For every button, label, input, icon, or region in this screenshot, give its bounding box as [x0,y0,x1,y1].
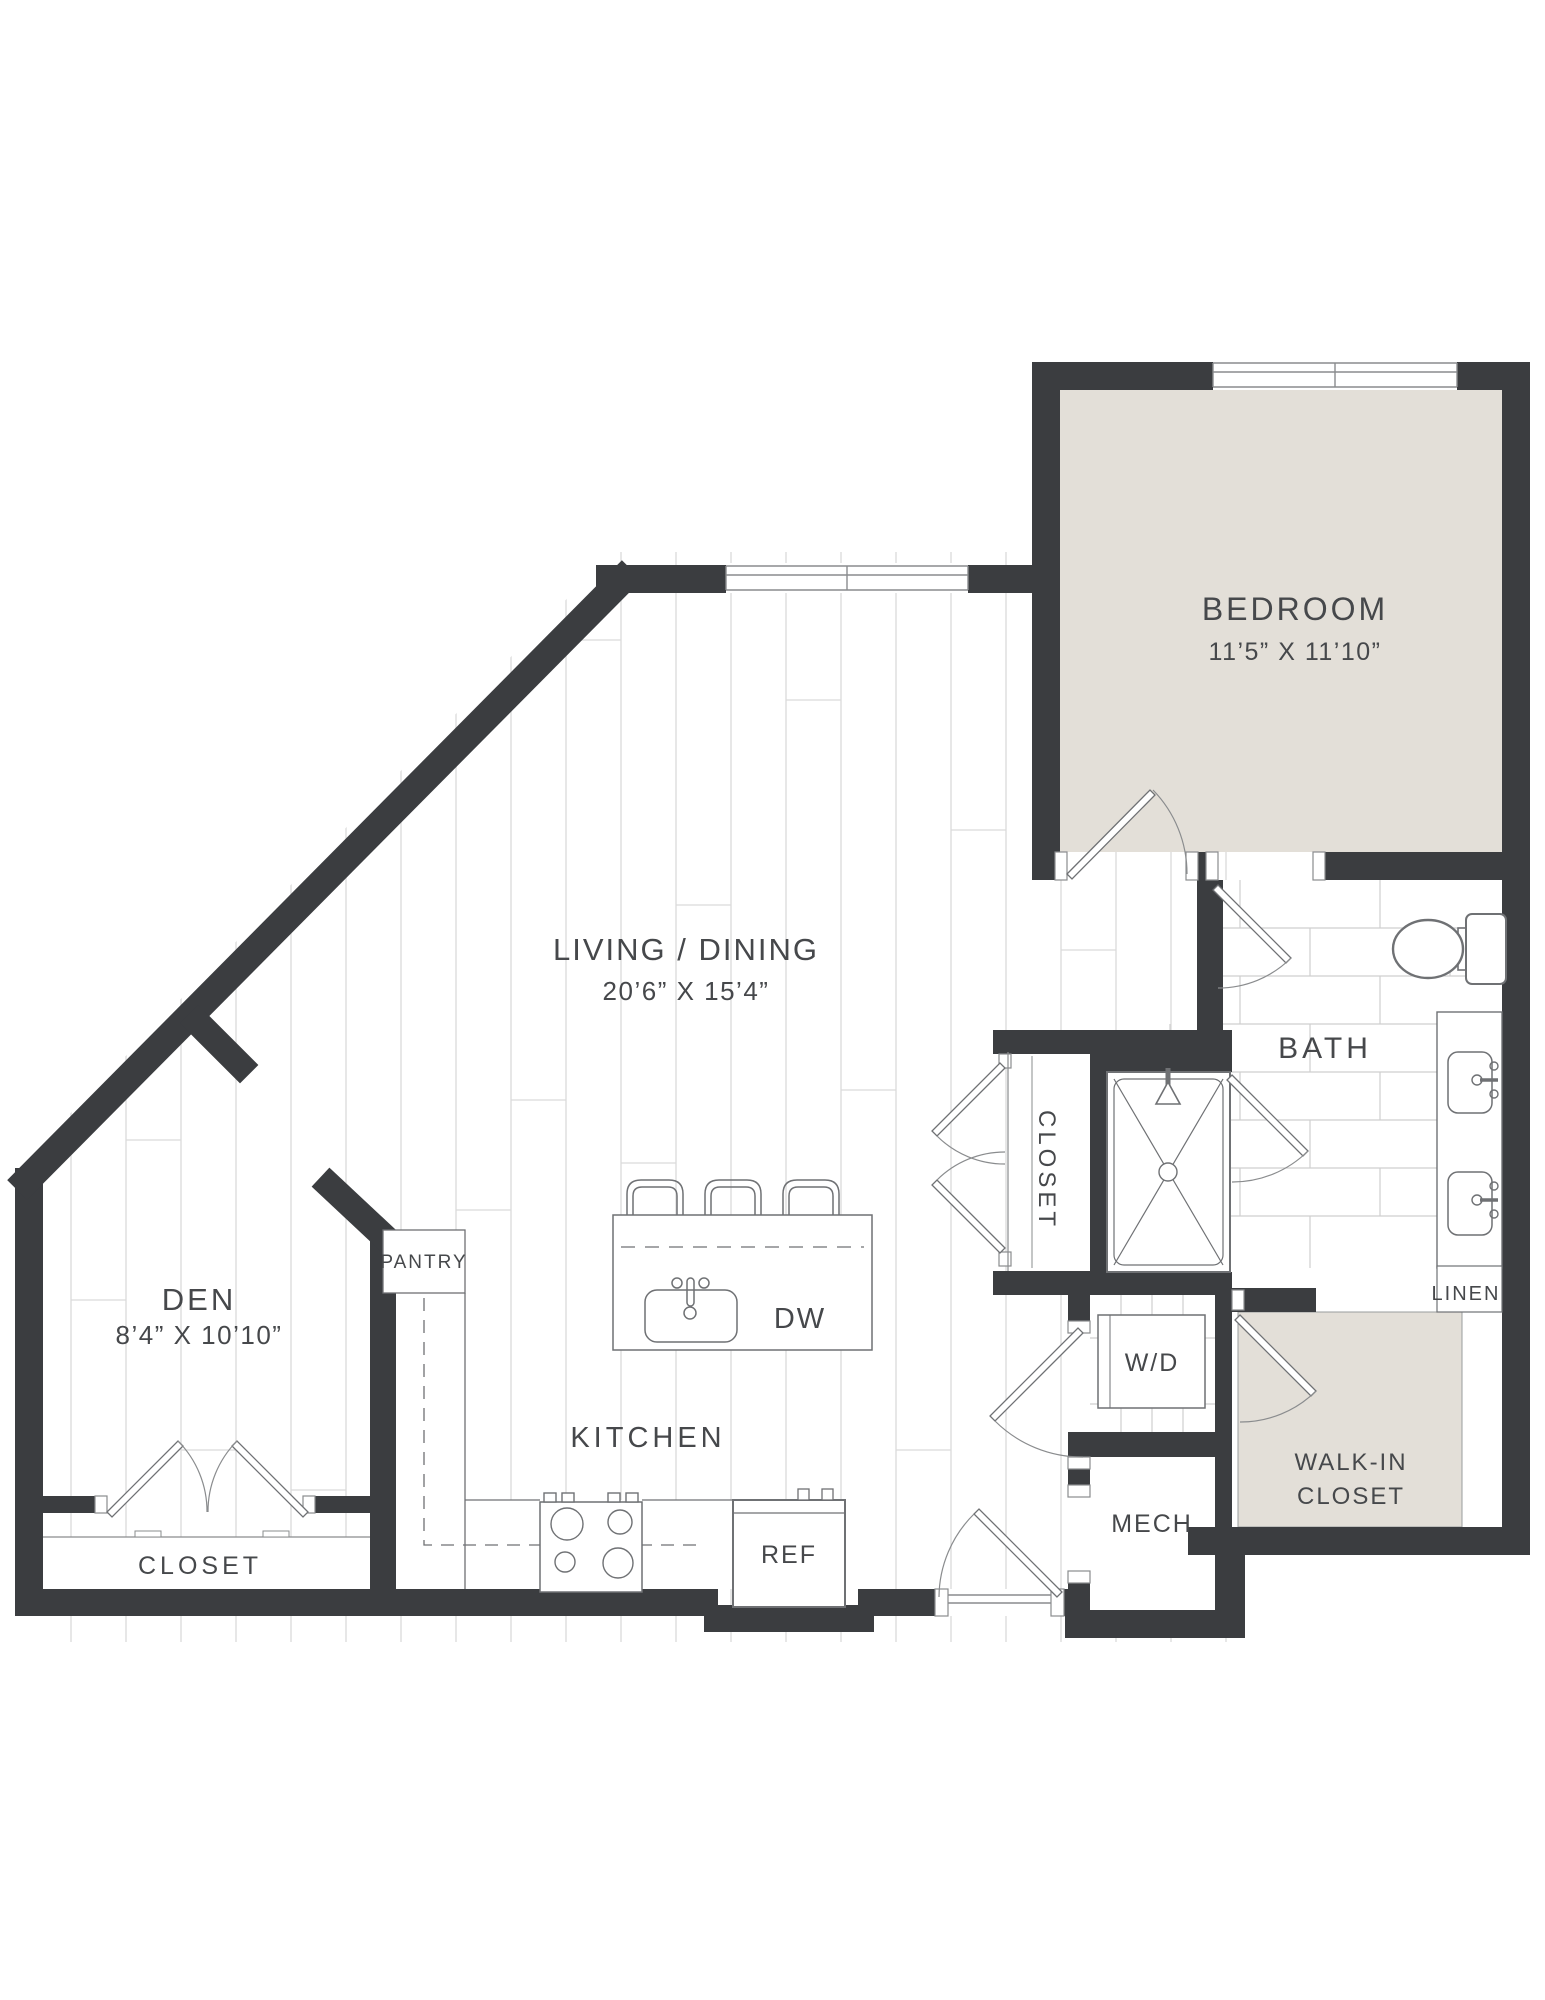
mech-label: MECH [1111,1510,1193,1538]
floor-plan-page: BEDROOM 11’5” X 11’10” LIVING / DINING 2… [0,0,1545,2000]
bedroom-window [1213,360,1457,390]
dishwasher-label: DW [774,1303,826,1335]
bath-label: BATH [1278,1032,1372,1065]
bedroom-label: BEDROOM [1202,591,1388,627]
walk-in-closet-label-line2: CLOSET [1297,1483,1405,1510]
vanity-sink-2 [1448,1172,1492,1235]
bedroom-dims: 11’5” X 11’10” [1209,638,1382,666]
hall-closet-double-doors [932,1063,1005,1253]
floor-plan: BEDROOM 11’5” X 11’10” LIVING / DINING 2… [0,0,1545,2000]
shower [1107,1068,1230,1272]
vanity [1437,1012,1502,1268]
refrigerator-label: REF [761,1541,817,1569]
den-closet-label: CLOSET [138,1552,262,1580]
den-closet-lines [43,1531,370,1537]
den-label: DEN [162,1282,236,1317]
kitchen-label: KITCHEN [570,1422,725,1454]
entry-threshold [935,1589,1064,1616]
bar-stools [627,1180,839,1215]
hall-closet-label: CLOSET [1033,1110,1060,1230]
living-dining-label: LIVING / DINING [553,932,819,967]
kitchen-island [613,1215,872,1350]
den-closet-double-doors [107,1441,308,1517]
walk-in-closet-label-line1: WALK-IN [1294,1449,1407,1476]
linen-label: LINEN [1432,1283,1501,1305]
vanity-sink-1 [1448,1052,1492,1113]
pantry-label: PANTRY [380,1252,467,1273]
den-dims: 8’4” X 10’10” [116,1320,283,1350]
living-dining-dims: 20’6” X 15’4” [603,976,770,1006]
stove [540,1493,642,1592]
washer-dryer-label: W/D [1125,1349,1180,1377]
entry-door [939,1509,1062,1597]
living-window [726,563,968,593]
island-sink [645,1290,737,1342]
